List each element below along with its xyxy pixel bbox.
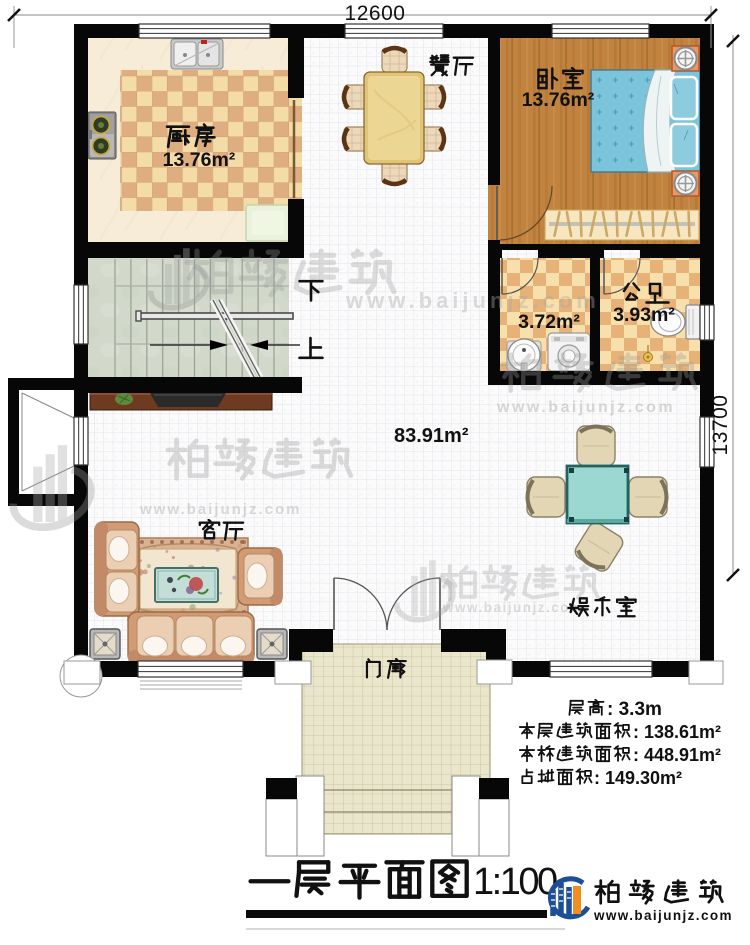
svg-text:13700: 13700 [709,395,732,456]
svg-text:www.baijunjz.com: www.baijunjz.com [593,908,733,923]
svg-text:83.91m²: 83.91m² [394,425,469,447]
svg-text:12600: 12600 [345,2,406,25]
svg-text:1:100: 1:100 [473,861,557,903]
svg-text:13.76m²: 13.76m² [163,149,236,171]
svg-text:: 138.61m²: : 138.61m² [633,722,721,742]
svg-text:13.76m²: 13.76m² [522,89,595,111]
svg-text:www.baijunjz.com: www.baijunjz.com [139,501,301,518]
svg-text:www.baijunjz.com: www.baijunjz.com [442,600,584,615]
svg-text:3.72m²: 3.72m² [518,311,580,333]
svg-text:www.baijunjz.com: www.baijunjz.com [496,399,675,416]
svg-text:: 448.91m²: : 448.91m² [633,745,721,765]
svg-text:www.baijunjz.com: www.baijunjz.com [345,288,600,313]
svg-text:: 3.3m: : 3.3m [607,699,662,720]
svg-text:3.93m²: 3.93m² [613,304,675,326]
svg-text:: 149.30m²: : 149.30m² [594,768,682,788]
